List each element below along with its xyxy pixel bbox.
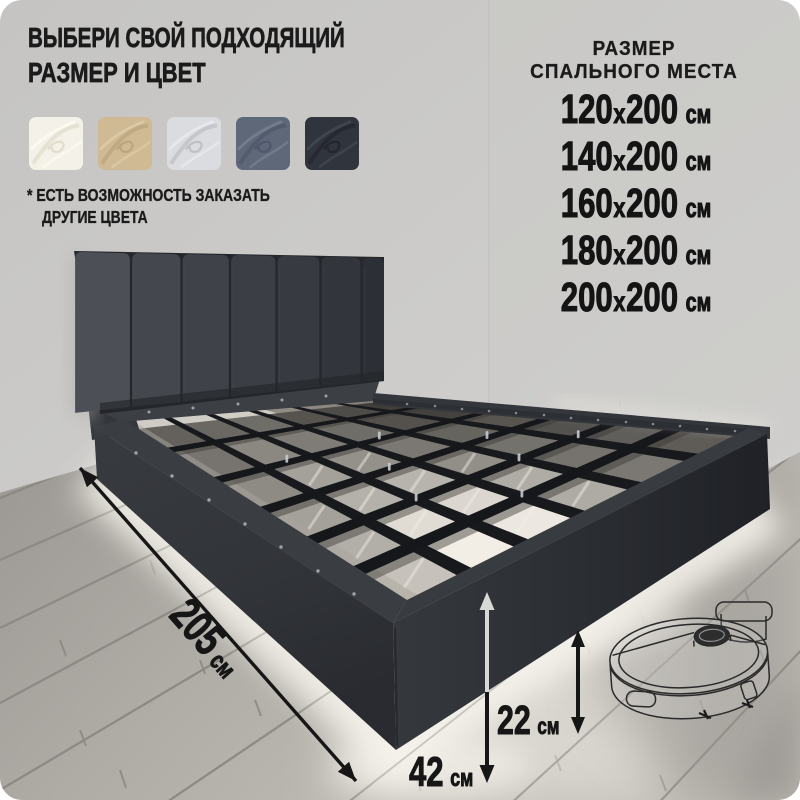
svg-text:* ЕСТЬ ВОЗМОЖНОСТЬ ЗАКАЗАТЬ: * ЕСТЬ ВОЗМОЖНОСТЬ ЗАКАЗАТЬ [27,186,270,205]
svg-text:РАЗМЕР: РАЗМЕР [593,37,676,60]
svg-text:РАЗМЕР И ЦВЕТ: РАЗМЕР И ЦВЕТ [28,58,206,89]
svg-text:ДРУГИЕ ЦВЕТА: ДРУГИЕ ЦВЕТА [42,208,148,227]
svg-text:ВЫБЕРИ СВОЙ ПОДХОДЯЩИЙ: ВЫБЕРИ СВОЙ ПОДХОДЯЩИЙ [28,20,345,53]
svg-text:СПАЛЬНОГО МЕСТА: СПАЛЬНОГО МЕСТА [530,60,738,83]
